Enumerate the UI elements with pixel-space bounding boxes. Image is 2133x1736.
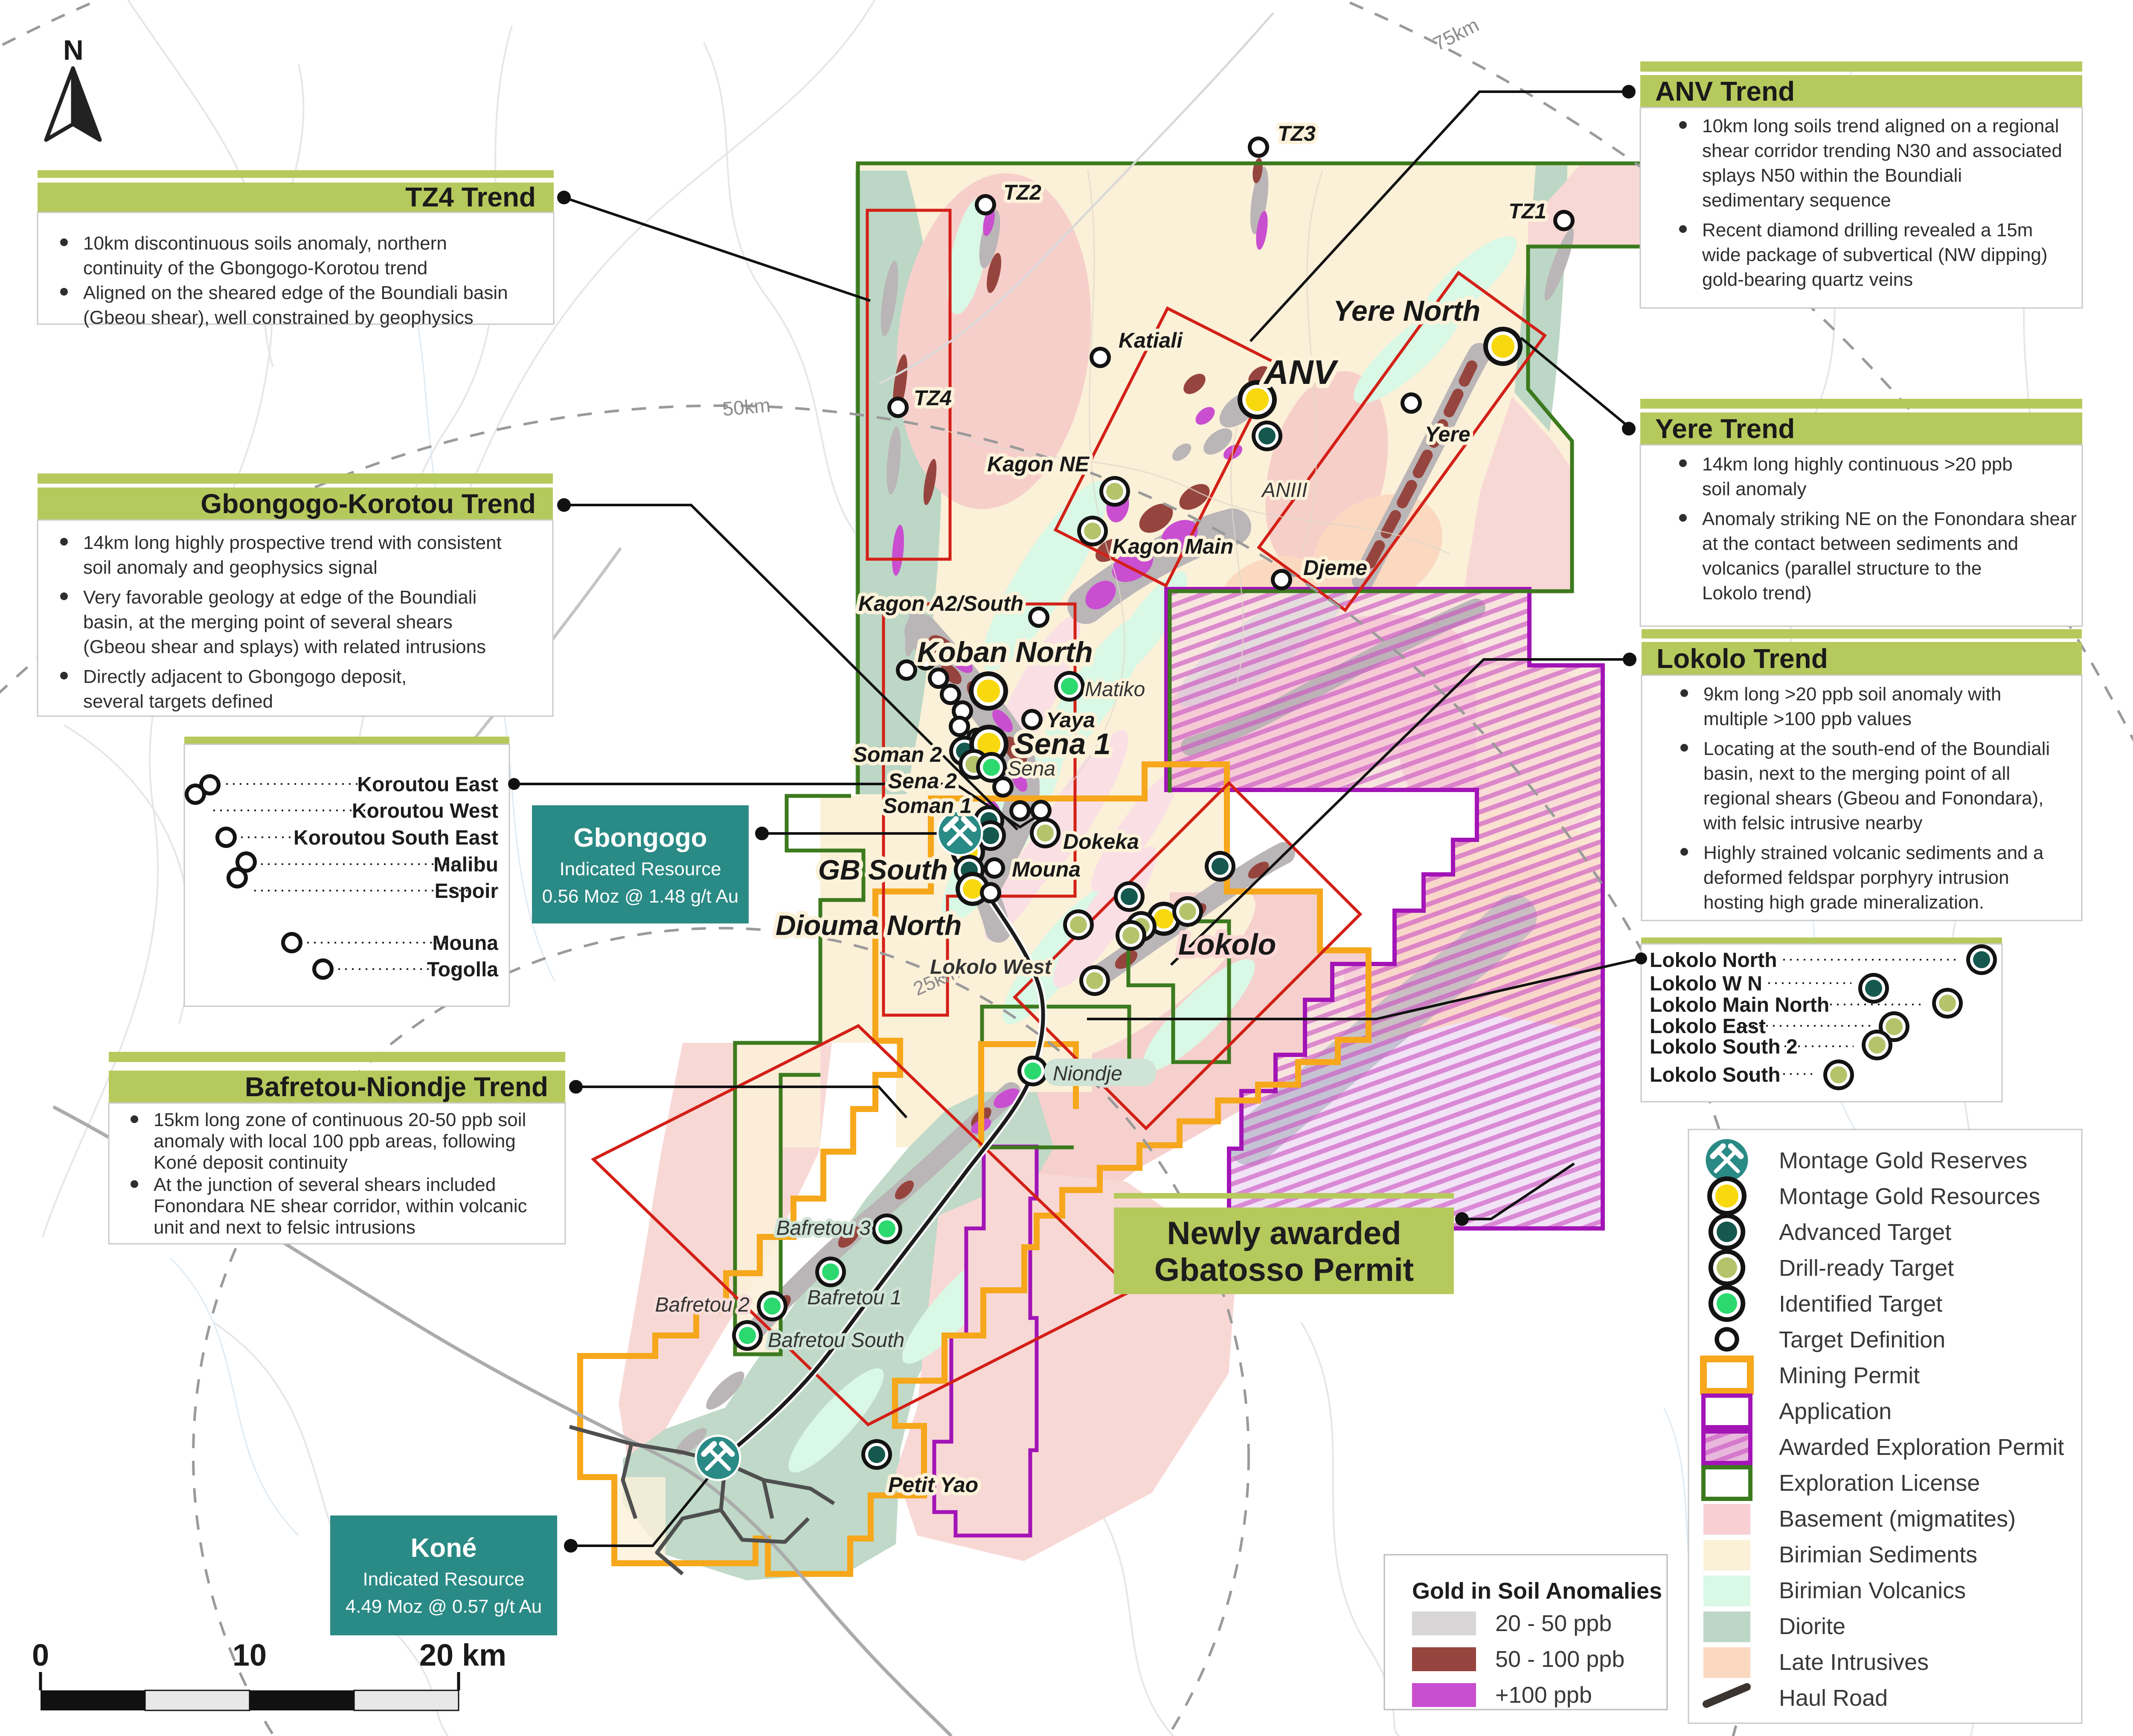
svg-text:Kagon A2/South: Kagon A2/South — [858, 592, 1023, 615]
svg-text:Bafretou 2: Bafretou 2 — [655, 1294, 750, 1316]
svg-text:Bafretou South: Bafretou South — [768, 1329, 904, 1352]
svg-text:Recent diamond drilling reveal: Recent diamond drilling revealed a 15m — [1702, 220, 2033, 241]
svg-text:At the junction of several she: At the junction of several shears includ… — [154, 1174, 496, 1195]
svg-text:Birimian Sediments: Birimian Sediments — [1779, 1542, 1977, 1568]
svg-text:Birimian Volcanics: Birimian Volcanics — [1779, 1578, 1966, 1603]
svg-text:Mouna: Mouna — [1012, 857, 1081, 881]
svg-text:basin, next to the merging poi: basin, next to the merging point of all — [1703, 763, 2010, 784]
svg-text:15km long zone of continuous 2: 15km long zone of continuous 20-50 ppb s… — [154, 1109, 526, 1130]
svg-text:Sena: Sena — [1008, 758, 1055, 780]
svg-text:Bafretou 1: Bafretou 1 — [807, 1286, 901, 1309]
svg-text:Yere Trend: Yere Trend — [1655, 413, 1795, 444]
svg-text:14km long highly prospective t: 14km long highly prospective trend with … — [83, 532, 502, 553]
svg-text:Aligned on the sheared edge of: Aligned on the sheared edge of the Bound… — [83, 282, 508, 303]
svg-text:Late Intrusives: Late Intrusives — [1779, 1649, 1929, 1675]
svg-text:(Gbeou shear and splays) with: (Gbeou shear and splays) with related in… — [83, 636, 486, 657]
svg-text:TZ4: TZ4 — [914, 386, 952, 410]
svg-text:Indicated Resource: Indicated Resource — [363, 1569, 524, 1590]
svg-text:(Gbeou shear), well constraine: (Gbeou shear), well constrained by geoph… — [83, 307, 474, 328]
svg-text:Koroutou East: Koroutou East — [357, 773, 498, 796]
svg-text:Koroutou West: Koroutou West — [352, 800, 498, 822]
svg-text:gold-bearing quartz veins: gold-bearing quartz veins — [1702, 269, 1913, 290]
svg-text:Koné: Koné — [411, 1533, 477, 1563]
svg-text:Awarded Exploration Permit: Awarded Exploration Permit — [1779, 1434, 2064, 1460]
svg-text:Soman 1: Soman 1 — [883, 794, 972, 818]
svg-text:+100 ppb: +100 ppb — [1495, 1682, 1592, 1708]
svg-text:10: 10 — [232, 1638, 267, 1672]
svg-text:50km: 50km — [721, 394, 771, 420]
svg-text:Bafretou-Niondje Trend: Bafretou-Niondje Trend — [245, 1071, 548, 1102]
svg-text:Mining Permit: Mining Permit — [1779, 1363, 1920, 1388]
svg-text:Petit Yao: Petit Yao — [888, 1473, 978, 1497]
svg-text:Dokeka: Dokeka — [1063, 830, 1139, 853]
svg-text:Malibu: Malibu — [433, 853, 498, 876]
svg-text:Matiko: Matiko — [1085, 678, 1145, 701]
svg-text:Koroutou South East: Koroutou South East — [294, 827, 498, 849]
svg-text:Koné deposit continuity: Koné deposit continuity — [154, 1152, 348, 1173]
svg-text:9km long >20 ppb soil anomaly: 9km long >20 ppb soil anomaly with — [1703, 684, 2001, 705]
svg-text:ANV: ANV — [1263, 353, 1339, 391]
svg-text:Locating at the south-end of t: Locating at the south-end of the Boundia… — [1703, 738, 2050, 759]
svg-text:10km discontinuous soils anoma: 10km discontinuous soils anomaly, northe… — [83, 233, 447, 254]
svg-text:Drill-ready Target: Drill-ready Target — [1779, 1255, 1954, 1281]
svg-text:Djeme: Djeme — [1303, 556, 1367, 580]
svg-text:Target Definition: Target Definition — [1779, 1327, 1945, 1353]
svg-text:0: 0 — [32, 1638, 49, 1672]
svg-text:Application: Application — [1779, 1399, 1892, 1424]
svg-text:TZ3: TZ3 — [1278, 122, 1316, 145]
svg-text:Anomaly striking NE on the Fon: Anomaly striking NE on the Fonondara she… — [1702, 508, 2077, 529]
svg-text:Bafretou 3: Bafretou 3 — [776, 1217, 871, 1240]
svg-text:Gbongogo: Gbongogo — [573, 823, 707, 853]
svg-text:multiple >100 ppb values: multiple >100 ppb values — [1703, 708, 1912, 729]
svg-text:ANV Trend: ANV Trend — [1655, 76, 1795, 107]
svg-text:TZ1: TZ1 — [1508, 199, 1546, 223]
svg-text:Diouma North: Diouma North — [776, 909, 962, 941]
svg-text:splays N50 within the Boundia: splays N50 within the Boundiali — [1702, 165, 1962, 186]
svg-text:volcanics (parallel structure: volcanics (parallel structure to the — [1702, 558, 1982, 579]
svg-text:sedimentary sequence: sedimentary sequence — [1702, 190, 1891, 211]
svg-text:Lokolo East: Lokolo East — [1650, 1015, 1766, 1038]
svg-text:Kagon NE: Kagon NE — [987, 452, 1090, 476]
svg-text:Identified Target: Identified Target — [1779, 1291, 1942, 1317]
svg-text:deformed feldspar porphyry int: deformed feldspar porphyry intrusion — [1703, 867, 2009, 888]
svg-text:Niondje: Niondje — [1053, 1063, 1122, 1085]
svg-text:basin, at the merging point of: basin, at the merging point of several s… — [83, 612, 453, 633]
svg-text:Lokolo Trend: Lokolo Trend — [1656, 643, 1828, 674]
svg-text:Yere North: Yere North — [1333, 295, 1480, 327]
svg-text:Sena 2: Sena 2 — [888, 769, 957, 793]
svg-text:Fonondara NE shear corridor, w: Fonondara NE shear corridor, within volc… — [154, 1196, 527, 1216]
svg-text:Lokolo South 2: Lokolo South 2 — [1650, 1036, 1798, 1058]
svg-text:anomaly with local 100 ppb are: anomaly with local 100 ppb areas, follow… — [154, 1131, 516, 1152]
svg-text:shear corridor trending N30 an: shear corridor trending N30 and associat… — [1702, 140, 2062, 161]
svg-text:Yere: Yere — [1425, 422, 1470, 446]
svg-text:0.56 Moz @ 1.48 g/t Au: 0.56 Moz @ 1.48 g/t Au — [542, 886, 739, 907]
svg-text:20 km: 20 km — [419, 1638, 506, 1672]
svg-text:Lokolo North: Lokolo North — [1650, 949, 1777, 972]
svg-text:14km long highly continuous >2: 14km long highly continuous >20 ppb — [1702, 454, 2013, 475]
svg-text:Lokolo West: Lokolo West — [930, 956, 1052, 978]
svg-text:continuity of the Gbongogo-Kor: continuity of the Gbongogo-Korotou trend — [83, 258, 427, 279]
svg-text:soil anomaly: soil anomaly — [1702, 479, 1807, 499]
svg-text:soil anomaly and geophysics si: soil anomaly and geophysics signal — [83, 557, 378, 578]
svg-text:20 - 50 ppb: 20 - 50 ppb — [1495, 1611, 1612, 1636]
svg-text:Mouna: Mouna — [432, 932, 498, 955]
svg-text:Koban North: Koban North — [917, 636, 1093, 668]
svg-text:several targets defined: several targets defined — [83, 691, 273, 712]
svg-text:Diorite: Diorite — [1779, 1614, 1845, 1639]
svg-text:Lokolo South: Lokolo South — [1650, 1064, 1781, 1086]
svg-text:Montage Gold Reserves: Montage Gold Reserves — [1779, 1148, 2027, 1173]
svg-text:Advanced Target: Advanced Target — [1779, 1219, 1951, 1245]
svg-text:TZ2: TZ2 — [1003, 180, 1041, 204]
svg-text:N: N — [63, 34, 84, 66]
svg-text:Kagon Main: Kagon Main — [1113, 534, 1233, 558]
svg-text:Gbongogo-Korotou Trend: Gbongogo-Korotou Trend — [201, 488, 536, 519]
svg-text:Highly strained volcanic sedim: Highly strained volcanic sediments and a — [1703, 842, 2044, 863]
svg-text:unit and next to felsic intrus: unit and next to felsic intrusions — [154, 1217, 416, 1238]
svg-text:Exploration License: Exploration License — [1779, 1470, 1980, 1496]
svg-text:Lokolo W N: Lokolo W N — [1650, 973, 1762, 995]
svg-text:Katiali: Katiali — [1119, 328, 1183, 352]
svg-text:Very favorable geology at edge: Very favorable geology at edge of the Bo… — [83, 587, 477, 608]
svg-text:Lokolo trend): Lokolo trend) — [1702, 583, 1812, 604]
svg-text:at the contact between sedimen: at the contact between sediments and — [1702, 533, 2018, 554]
svg-text:Indicated Resource: Indicated Resource — [559, 859, 721, 880]
svg-text:Togolla: Togolla — [427, 958, 498, 981]
svg-text:50 - 100 ppb: 50 - 100 ppb — [1495, 1646, 1624, 1672]
svg-text:hosting high grade mineralizat: hosting high grade mineralization. — [1703, 892, 1984, 913]
svg-text:Montage Gold Resources: Montage Gold Resources — [1779, 1184, 2040, 1209]
svg-text:with felsic intrusive nearby: with felsic intrusive nearby — [1703, 813, 1923, 833]
svg-text:Sena 1: Sena 1 — [1014, 727, 1111, 761]
svg-text:Lokolo Main North: Lokolo Main North — [1650, 994, 1829, 1016]
svg-text:Lokolo: Lokolo — [1178, 928, 1276, 961]
svg-text:10km long soils trend aligned: 10km long soils trend aligned on a regio… — [1702, 116, 2059, 136]
svg-text:TZ4 Trend: TZ4 Trend — [405, 182, 536, 212]
svg-text:Basement (migmatites): Basement (migmatites) — [1779, 1506, 2016, 1532]
svg-text:Espoir: Espoir — [435, 880, 498, 903]
svg-text:Gbatosso Permit: Gbatosso Permit — [1154, 1252, 1414, 1288]
svg-text:wide package of subvertical (N: wide package of subvertical (NW dipping) — [1702, 244, 2048, 265]
svg-text:ANIII: ANIII — [1261, 479, 1308, 502]
svg-text:Haul Road: Haul Road — [1779, 1685, 1888, 1711]
svg-text:Gold in Soil Anomalies: Gold in Soil Anomalies — [1412, 1578, 1662, 1604]
svg-text:Soman 2: Soman 2 — [853, 743, 942, 766]
svg-text:Directly adjacent to Gbongogo: Directly adjacent to Gbongogo deposit, — [83, 666, 407, 687]
svg-text:Newly awarded: Newly awarded — [1167, 1215, 1401, 1251]
svg-text:GB South: GB South — [818, 854, 948, 885]
svg-text:regional shears (Gbeou and Fon: regional shears (Gbeou and Fonondara), — [1703, 788, 2043, 809]
svg-text:4.49 Moz @ 0.57 g/t Au: 4.49 Moz @ 0.57 g/t Au — [346, 1596, 542, 1617]
